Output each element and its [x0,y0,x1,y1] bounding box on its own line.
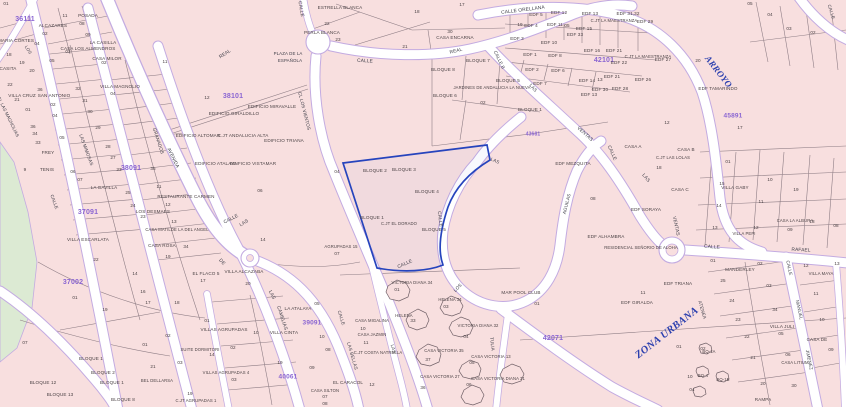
parcel-name-label: EDF 28 [612,87,628,92]
parcel-number-label: 18 [6,53,11,58]
parcel-name-label: EDF TRIANA [664,282,692,287]
parcel-number-label: 21 [14,98,19,103]
street-name-label: PLAZA DE LA [274,52,303,56]
parcel-number-label: 02 [810,31,815,36]
parcel-name-label: EDIFICIO ALTOMAR [176,134,221,139]
street-name-label: CALLE [607,145,618,161]
street-name-label: LAS [641,173,651,183]
parcel-number-label: 17 [200,279,205,284]
parcel-number-label: 11 [156,185,161,190]
parcel-name-label: BLOQUE 5 [496,79,520,84]
parcel-name-label: LA GAVILLA [91,186,118,191]
parcel-number-label: 04 [110,92,115,97]
parcel-name-label: BLOQUE 2 [363,169,387,174]
parcel-name-label: CASA JAZMIN [358,333,387,337]
parcel-name-label: EL CARACOL [333,381,363,386]
parcel-name-label: EDIFICIO VISTAMAR [230,162,276,167]
parcel-number-label: 32 [75,87,80,92]
parcel-name-label: EDF 31,32 [616,12,639,17]
parcel-number-label: 11 [758,200,763,205]
geo-name-label: ARROYO [703,54,733,89]
parcel-name-label: CASITA [0,67,16,72]
street-name-label: VENTAS [576,126,594,143]
parcel-number-label: 23 [140,215,145,220]
parcel-name-label: EDF ALHAMBRA [588,235,625,240]
parcel-name-label: HELENA 34 [438,298,461,302]
parcel-name-label: EDF 12 [551,11,567,16]
parcel-name-label: BQ-4 [698,374,708,378]
parcel-name-label: EDF 21 [606,49,622,54]
parcel-number-label: 19 [793,188,798,193]
parcel-name-label: VILLA CINTA [270,331,298,336]
parcel-number-label: 9 [24,168,27,173]
parcel-name-label: BLOQUE 13 [47,393,74,398]
parcel-number-label: 05 [314,302,319,307]
parcel-number-label: 19 [102,308,107,313]
parcel-number-label: 04 [34,42,39,47]
parcel-name-label: CASA DE [807,338,828,343]
parcel-number-label: 19 [187,392,192,397]
parcel-number-label: 17 [737,126,742,131]
parcel-number-label: 20 [695,59,700,64]
parcel-name-label: EDF 22 [611,61,627,66]
parcel-name-label: PERLA BLANCA [304,31,340,36]
parcel-name-label: EDF 27 [655,58,671,63]
parcel-number-label: 25 [720,279,725,284]
parcel-name-label: C.JT LAS LOLAS [656,156,690,160]
parcel-number-label: 13 [712,226,717,231]
parcel-number-label: 06 [70,170,75,175]
parcel-number-label: 03 [65,50,70,55]
parcel-name-label: BLOQUE 6 [433,94,457,99]
parcel-name-label: EDF SORAYA [631,208,661,213]
parcel-number-label: 12 [204,96,209,101]
zone-ref-label: 37002 [63,279,83,286]
street-name-label: RAFAEL [791,247,810,253]
parcel-number-label: 18 [174,301,179,306]
street-name-label: CALLE [357,58,373,64]
parcel-name-label: VILLA ESCARLATA [67,238,109,243]
parcel-number-label: 30 [87,110,92,115]
street-name-label: REAL [449,47,463,55]
parcel-number-label: 10 [319,335,324,340]
parcel-number-label: 31 [82,99,87,104]
parcel-number-label: 06 [257,189,262,194]
parcel-number-label: 10 [253,331,258,336]
parcel-number-label: 05 [778,332,783,337]
parcel-number-label: 04 [334,170,339,175]
parcel-name-label: EDF 29 [637,20,653,25]
street-name-label: LAS MIMOSAS [78,134,94,167]
map-labels-layer: 3611138101421014589143681380913709137002… [0,0,846,407]
parcel-name-label: EDF 7 [533,82,547,87]
parcel-name-label: RESTAURANTE CARMEN [157,195,214,200]
street-name-label: CALLE [336,310,345,326]
parcel-name-label: LA CASILLA [90,41,117,46]
parcel-number-label: 01 [204,319,209,324]
parcel-name-label: EDF 15 [576,27,592,32]
parcel-number-label: 08 [590,197,595,202]
street-name-label: LAS [490,157,500,165]
parcel-name-label: EDF 13 [582,12,598,17]
parcel-number-label: 16 [140,290,145,295]
parcel-name-label: BLOQUE 2 [91,371,115,376]
parcel-name-label: EDIFICIO GIRALDILLO [209,112,260,117]
parcel-name-label: VILLA ALCAZABA [225,270,264,275]
parcel-name-label: VILLA GABY [721,186,748,191]
parcel-number-label: 02 [700,347,705,352]
street-name-label: CALLE [826,4,835,20]
parcel-name-label: RAMPA [755,398,772,403]
parcel-name-label: CASA A [624,145,641,150]
parcel-number-label: 07 [77,178,82,183]
parcel-number-label: 11 [62,14,67,19]
parcel-name-label: MAR POOL CLUB [501,291,540,296]
street-name-label: ESPAÑOLA [278,59,302,63]
parcel-number-label: 01 [3,2,8,7]
parcel-number-label: 19 [19,61,24,66]
zone-ref-label: 45891 [724,113,743,120]
parcel-name-label: C.JT LA MAESTRANZA [591,19,638,23]
parcel-number-label: 02 [757,262,762,267]
zone-ref-label: 42071 [543,335,563,342]
parcel-number-label: 30 [447,30,452,35]
parcel-number-label: 11 [162,60,167,65]
parcel-number-label: 07 [334,252,339,257]
parcel-number-label: 08 [833,224,838,229]
parcel-name-label: CASA LA ALBURA [777,219,813,223]
parcel-number-label: 05 [49,59,54,64]
parcel-name-label: MANDERLEY [725,268,755,273]
parcel-number-label: 01 [676,345,681,350]
parcel-name-label: CASA SILTON [311,389,339,393]
parcel-number-label: 06 [785,353,790,358]
parcel-number-label: 05 [564,24,569,29]
parcel-name-label: EDF 3 [510,37,524,42]
parcel-name-label: CASA MATILDE LA DEL ANGEL [145,228,208,232]
parcel-name-label: CASA ROSA [148,244,176,249]
street-name-label: CL LOS VIENTOS [297,91,311,130]
parcel-number-label: 07 [22,341,27,346]
parcel-name-label: POSADA [78,14,98,19]
parcel-number-label: 09 [828,348,833,353]
parcel-number-label: 21 [750,356,755,361]
parcel-name-label: BLOQUE 5 [422,228,446,233]
street-name-label: CL LAS MAGNOLIAS [0,96,20,138]
parcel-name-label: JARDINES DE ANDALUCIA LA NUEVA [453,86,530,90]
parcel-name-label: EDF 21 [604,75,620,80]
parcel-name-label: BLOQUE 1 [100,381,124,386]
parcel-name-label: C.JT ANDALUCIA ALTA [218,134,269,139]
parcel-number-label: 36 [420,386,425,391]
parcel-number-label: 03 [231,378,236,383]
parcel-number-label: 04 [689,388,694,393]
geo-name-label: ZONA URBANA [634,305,701,360]
street-name-label: REAL [218,48,232,59]
street-name-label: LOS [453,283,463,293]
parcel-number-label: 34 [772,308,777,313]
parcel-number-label: 13 [834,262,839,267]
parcel-number-label: 03 [443,305,448,310]
parcel-name-label: LA ATALAYA [285,307,312,312]
parcel-name-label: BLOQUE 8 [111,398,135,403]
parcel-number-label: 17 [145,301,150,306]
parcel-name-label: BLOQUE 3 [392,168,416,173]
parcel-name-label: EDIFICIO MIRAVALLE [248,105,296,110]
parcel-number-label: 08 [325,348,330,353]
parcel-number-label: 23 [735,318,740,323]
parcel-name-label: CASA LITIUM [781,361,808,365]
parcel-number-label: 21 [402,45,407,50]
parcel-number-label: 24 [130,204,135,209]
parcel-name-label: BEL DELLARSA [141,379,173,383]
parcel-name-label: EDF MEZQUITA [555,162,590,167]
street-name-label: LAS [239,218,250,227]
street-name-label: CALLE [223,213,239,224]
street-name-label: VENTAS [672,216,681,236]
parcel-number-label: 02 [165,334,170,339]
parcel-number-label: 12 [165,203,170,208]
parcel-number-label: 14 [716,204,721,209]
street-name-label: CALLE B [493,50,506,70]
parcel-name-label: CASA VICTORIA 35 [424,349,463,353]
parcel-name-label: TENIS [40,168,54,173]
parcel-number-label: 12 [753,226,758,231]
parcel-number-label: 02 [230,346,235,351]
parcel-number-label: 10 [819,318,824,323]
parcel-number-label: 36 [30,125,35,130]
parcel-number-label: 19 [517,23,522,28]
street-name-label: CALLE [49,194,59,210]
street-name-label: MANUEL [795,300,804,320]
parcel-number-label: 01 [534,302,539,307]
parcel-number-label: 22 [324,22,329,27]
parcel-name-label: EDF TAMARINDO [698,87,737,92]
parcel-number-label: 20 [29,69,34,74]
street-name-label: AVENIDA [166,147,180,168]
zone-ref-label: 39091 [303,320,322,327]
parcel-number-label: 20 [760,382,765,387]
parcel-name-label: EDF 2 [525,68,539,73]
parcel-number-label: 29 [95,126,100,131]
parcel-number-label: 22 [744,335,749,340]
parcel-number-label: 08 [79,22,84,27]
parcel-number-label: 27 [110,156,115,161]
parcel-name-label: CASA VICTORIA DIANA 31 [471,377,525,381]
parcel-name-label: C.JT AGRUPADAS 1 [176,399,217,403]
parcel-number-label: 25 [125,191,130,196]
parcel-name-label: FREY [42,151,55,156]
parcel-name-label: EDF 6 [551,69,565,74]
parcel-name-label: EDF 10 [541,41,557,46]
parcel-name-label: EDF 26 [635,78,651,83]
parcel-number-label: 01 [25,108,30,113]
parcel-number-label: 06 [466,383,471,388]
zone-ref-label: 40061 [279,374,298,381]
parcel-number-label: 10 [767,178,772,183]
parcel-number-label: 10 [360,327,365,332]
parcel-name-label: EDF 4 [524,24,538,29]
street-name-label: AGUILAS [562,193,571,214]
parcel-number-label: 08 [322,402,327,407]
parcel-name-label: ESTRELLA BLANCA [318,6,363,11]
parcel-number-label: 33 [116,168,121,173]
parcel-name-label: EDF 8 [548,54,562,59]
parcel-name-label: BLOQUE 1 [518,108,542,113]
street-name-label: CALLE [397,259,413,270]
parcel-name-label: VILLA CRUZ [8,94,35,99]
cadastral-map[interactable]: 3611138101421014589143681380913709137002… [0,0,846,407]
parcel-number-label: 33 [410,319,415,324]
parcel-number-label: 36 [37,88,42,93]
parcel-name-label: EDF 13 [581,93,597,98]
parcel-number-label: 12 [369,383,374,388]
zone-ref-label: 38101 [223,93,243,100]
parcel-number-label: 03 [177,361,182,366]
parcel-number-label: 09 [309,366,314,371]
parcel-number-label: 34 [32,132,37,137]
parcel-name-label: VICTORIA DIANA 32 [458,324,499,328]
parcel-name-label: LOS DESMAES [136,210,170,215]
street-name-label: LAS BELLAS [346,342,358,371]
parcel-name-label: C.JT COSTA NATRELLA [354,351,402,355]
parcel-name-label: BLOQUE 1 [360,216,384,221]
parcel-number-label: 09 [787,228,792,233]
street-name-label: CALLE [297,1,304,17]
parcel-number-label: 02 [42,32,47,37]
street-name-label: CALLE [704,244,720,250]
parcel-number-label: 05 [469,361,474,366]
parcel-name-label: EDF 33 [567,33,583,38]
parcel-number-label: 23 [335,38,340,43]
parcel-name-label: VILLAS AGRUPADAS 4 [203,371,250,375]
parcel-number-label: 15 [719,182,724,187]
parcel-number-label: 17 [459,3,464,8]
parcel-name-label: MARIA CORTES [0,39,34,44]
parcel-name-label: CASA MILOR [92,57,121,62]
parcel-number-label: 03 [786,27,791,32]
parcel-name-label: BLOQUE 7 [466,59,490,64]
parcel-name-label: ALCAZARES [39,24,67,29]
zone-ref-label: 37091 [78,209,98,216]
parcel-name-label: CASA VICTORIA 27 [420,375,459,379]
parcel-number-label: 22 [7,83,12,88]
parcel-number-label: 13 [171,220,176,225]
parcel-name-label: CASA B [677,148,694,153]
street-name-label: LAS [268,290,277,301]
parcel-number-label: 34 [183,245,188,250]
zone-ref-label: 36111 [15,16,35,23]
parcel-number-label: 14 [132,272,137,277]
parcel-number-label: 12 [803,264,808,269]
parcel-name-label: EDF 1 [523,53,537,58]
parcel-number-label: 05 [59,136,64,141]
street-name-label: CALLE [785,260,793,276]
parcel-name-label: RESIDENCIAL SEÑORIO DE ALOHA [604,246,678,250]
parcel-number-label: 04 [52,114,57,119]
parcel-name-label: EDF 16 [584,49,600,54]
street-name-label: TULIA [489,337,495,351]
parcel-name-label: EDIFICIO TRIANA [264,139,304,144]
zone-ref-label: 43681 [526,132,541,137]
parcel-number-label: 20 [245,282,250,287]
parcel-number-label: 18 [414,10,419,15]
street-name-label: ATENEA [697,300,707,319]
parcel-name-label: SAN ANTONIO [38,94,71,99]
parcel-number-label: 09 [85,33,90,38]
parcel-name-label: CASA MIGALINA [355,319,389,323]
parcel-number-label: 04 [767,13,772,18]
parcel-name-label: BLOQUE 4 [415,190,439,195]
parcel-number-label: 12 [664,121,669,126]
parcel-name-label: VILLA MAYA [809,272,834,276]
parcel-number-label: 18 [656,166,661,171]
parcel-name-label: CASA C [671,188,689,193]
parcel-number-label: 28 [105,145,110,150]
parcel-name-label: VICTORIA DIANA 34 [392,281,433,285]
zone-ref-label: 38091 [121,165,141,172]
parcel-name-label: EDF 5 [529,13,543,18]
parcel-number-label: 14 [209,353,214,358]
parcel-number-label: 01 [394,288,399,293]
street-name-label: DE [218,258,226,266]
parcel-name-label: VILLA JULI [770,325,794,330]
parcel-number-label: 07 [322,395,327,400]
parcel-number-label: 05 [747,2,752,7]
parcel-name-label: AGRUPADAS 15 [324,245,357,249]
parcel-name-label: EL FLACO 5 [192,272,219,277]
parcel-number-label: 01 [142,343,147,348]
parcel-number-label: 21 [150,365,155,370]
parcel-number-label: 11 [813,292,818,297]
parcel-name-label: C.JT EL DORADO [381,222,417,226]
parcel-number-label: 22 [93,258,98,263]
parcel-name-label: BQ-1B [716,378,729,382]
parcel-number-label: 02 [50,103,55,108]
parcel-number-label: 01 [725,160,730,165]
parcel-name-label: EDF 14 [579,79,595,84]
parcel-number-label: 03 [766,284,771,289]
parcel-number-label: 14 [260,238,265,243]
parcel-number-label: 10 [687,375,692,380]
street-name-label: LOS [24,45,33,55]
parcel-name-label: VILLA PEPI [732,232,755,236]
parcel-name-label: CASA VICTORIA 13 [471,355,510,359]
parcel-number-label: 13 [597,78,602,83]
parcel-name-label: BLOQUE 12 [30,381,57,386]
parcel-number-label: 37 [425,358,430,363]
parcel-number-label: 02 [480,101,485,106]
parcel-number-label: 33 [35,141,40,146]
street-name-label: CALLE [437,211,444,227]
parcel-name-label: EDF GIRALDA [621,301,653,306]
parcel-number-label: 04 [463,335,468,340]
parcel-number-label: 02 [101,61,106,66]
parcel-number-label: 19 [277,361,282,366]
parcel-number-label: 01 [710,259,715,264]
parcel-name-label: EDF 11 [547,23,563,28]
parcel-name-label: CASA ENCARNA [436,36,473,41]
parcel-number-label: 24 [729,299,734,304]
parcel-number-label: 11 [363,341,368,346]
parcel-name-label: BLOQUE 1 [79,357,103,362]
parcel-number-label: 30 [791,384,796,389]
parcel-name-label: VILLA MAGNOLIO [100,85,140,90]
parcel-name-label: BLOQUE 8 [431,68,455,73]
parcel-number-label: 35 [150,167,155,172]
parcel-name-label: VILLAS AGRUPADAS [200,328,247,333]
parcel-number-label: 01 [72,296,77,301]
